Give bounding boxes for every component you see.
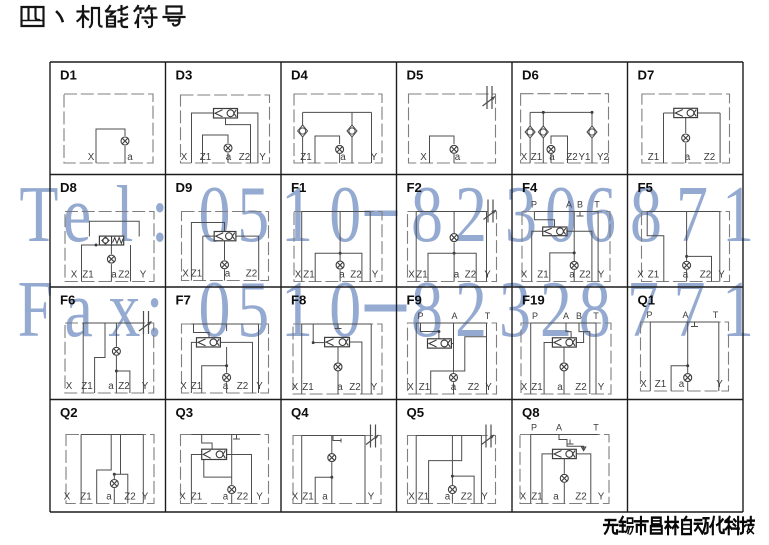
svg-text:a: a: [683, 270, 689, 281]
svg-text:a: a: [223, 381, 229, 392]
svg-text:X: X: [640, 379, 647, 390]
svg-text:a: a: [557, 382, 563, 393]
svg-text:Y: Y: [371, 152, 378, 163]
svg-text:Z1: Z1: [531, 492, 542, 503]
svg-text:Z2: Z2: [349, 382, 360, 393]
svg-text:D1: D1: [60, 68, 77, 83]
svg-text:Y: Y: [481, 492, 488, 503]
svg-text:Z2: Z2: [575, 492, 586, 503]
svg-text:T: T: [593, 311, 599, 321]
svg-text:a: a: [569, 270, 575, 281]
svg-text:a: a: [340, 152, 346, 163]
svg-text:X: X: [292, 382, 299, 393]
svg-text:Z1: Z1: [531, 382, 542, 393]
svg-text:F5: F5: [638, 180, 653, 195]
svg-text:F8: F8: [291, 293, 306, 308]
svg-text:Z2: Z2: [124, 492, 135, 503]
svg-text:Z2: Z2: [350, 270, 361, 281]
svg-text:P: P: [531, 200, 537, 210]
svg-text:Q3: Q3: [176, 405, 194, 420]
svg-text:F4: F4: [522, 180, 538, 195]
svg-text:X: X: [408, 270, 415, 281]
svg-text:Y: Y: [485, 382, 492, 393]
svg-text:X: X: [407, 382, 414, 393]
svg-text:Y: Y: [598, 492, 605, 503]
svg-text:Z1: Z1: [416, 270, 427, 281]
svg-text:D3: D3: [176, 68, 193, 83]
svg-text:Z2: Z2: [237, 381, 248, 392]
svg-text:D4: D4: [291, 68, 309, 83]
svg-text:X: X: [637, 270, 644, 281]
svg-text:F19: F19: [522, 293, 545, 308]
svg-text:X: X: [64, 492, 71, 503]
svg-text:Z2: Z2: [118, 270, 129, 281]
svg-text:X: X: [71, 270, 78, 281]
svg-text:X: X: [182, 269, 189, 280]
svg-text:Z1: Z1: [418, 492, 429, 503]
svg-text:Z1: Z1: [531, 152, 542, 163]
svg-text:X: X: [521, 382, 528, 393]
svg-text:X: X: [88, 152, 95, 163]
svg-text:Z2: Z2: [468, 382, 479, 393]
svg-text:Z1: Z1: [419, 382, 430, 393]
svg-text:D6: D6: [522, 68, 539, 83]
svg-text:Z2: Z2: [566, 152, 577, 163]
svg-text:Y1: Y1: [579, 152, 591, 163]
svg-text:Z1: Z1: [81, 381, 92, 392]
svg-text:X: X: [180, 381, 187, 392]
svg-text:Y: Y: [484, 270, 491, 281]
svg-text:Y: Y: [371, 382, 378, 393]
svg-text:Q8: Q8: [522, 405, 540, 420]
svg-text:Y: Y: [716, 379, 723, 390]
svg-text:Z1: Z1: [537, 270, 548, 281]
svg-text:a: a: [225, 269, 231, 280]
svg-text:T: T: [485, 311, 491, 321]
svg-text:A: A: [556, 423, 562, 433]
svg-text:B: B: [577, 200, 583, 210]
svg-text:A: A: [563, 311, 569, 321]
svg-text:a: a: [337, 382, 343, 393]
svg-text:X: X: [521, 152, 528, 163]
svg-text:Z1: Z1: [302, 492, 313, 503]
svg-text:Z2: Z2: [237, 492, 248, 503]
svg-text:Z1: Z1: [303, 270, 314, 281]
svg-text:F9: F9: [407, 293, 422, 308]
svg-text:A: A: [451, 311, 457, 321]
svg-text:Z1: Z1: [655, 379, 666, 390]
svg-text:B: B: [576, 311, 582, 321]
svg-text:Z1: Z1: [200, 152, 211, 163]
svg-text:Y: Y: [368, 492, 375, 503]
svg-text:Z1: Z1: [191, 492, 202, 503]
svg-text:a: a: [223, 492, 229, 503]
svg-text:a: a: [445, 492, 451, 503]
svg-text:Z1: Z1: [302, 382, 313, 393]
svg-text:Y: Y: [142, 492, 149, 503]
svg-text:Z2: Z2: [118, 381, 129, 392]
svg-text:Z1: Z1: [82, 270, 93, 281]
svg-text:a: a: [106, 492, 112, 503]
svg-text:a: a: [455, 152, 461, 163]
svg-text:Q1: Q1: [638, 293, 656, 308]
svg-text:P: P: [531, 423, 537, 433]
svg-text:Z2: Z2: [700, 270, 711, 281]
svg-text:a: a: [685, 152, 691, 163]
svg-text:Y2: Y2: [597, 152, 609, 163]
svg-text:Z2: Z2: [575, 382, 586, 393]
svg-text:a: a: [549, 152, 555, 163]
svg-text:Y: Y: [142, 381, 149, 392]
svg-text:Y: Y: [718, 270, 725, 281]
svg-text:a: a: [339, 270, 345, 281]
svg-text:Z1: Z1: [191, 269, 202, 280]
svg-text:Y: Y: [598, 382, 605, 393]
svg-text:Z2: Z2: [239, 152, 250, 163]
svg-text:X: X: [520, 492, 527, 503]
svg-text:D7: D7: [638, 68, 655, 83]
svg-text:Z2: Z2: [579, 270, 590, 281]
svg-text:a: a: [679, 379, 685, 390]
svg-text:X: X: [420, 152, 427, 163]
svg-text:P: P: [532, 311, 538, 321]
svg-text:P: P: [646, 310, 652, 320]
svg-text:F1: F1: [291, 180, 306, 195]
svg-text:Y: Y: [372, 270, 379, 281]
svg-text:F6: F6: [60, 293, 75, 308]
svg-text:X: X: [179, 492, 186, 503]
svg-text:D8: D8: [60, 180, 77, 195]
svg-text:a: a: [108, 381, 114, 392]
svg-text:Z1: Z1: [648, 152, 659, 163]
svg-text:Z2: Z2: [465, 270, 476, 281]
svg-text:A: A: [566, 200, 572, 210]
svg-text:X: X: [66, 381, 73, 392]
svg-text:Y: Y: [140, 270, 147, 281]
svg-text:Z1: Z1: [191, 381, 202, 392]
svg-text:D9: D9: [176, 180, 193, 195]
svg-text:Y: Y: [256, 492, 263, 503]
svg-text:a: a: [322, 492, 328, 503]
svg-text:Q4: Q4: [291, 405, 309, 420]
svg-text:P: P: [417, 311, 423, 321]
svg-text:Z2: Z2: [461, 492, 472, 503]
svg-text:X: X: [408, 492, 415, 503]
svg-text:F2: F2: [407, 180, 422, 195]
svg-text:X: X: [181, 152, 188, 163]
svg-text:T: T: [713, 310, 719, 320]
svg-text:Y: Y: [256, 381, 263, 392]
svg-text:a: a: [451, 382, 457, 393]
svg-text:a: a: [454, 270, 460, 281]
svg-text:X: X: [521, 270, 528, 281]
svg-text:Y: Y: [259, 152, 266, 163]
svg-text:Q5: Q5: [407, 405, 425, 420]
svg-text:D5: D5: [407, 68, 424, 83]
svg-text:F7: F7: [176, 293, 191, 308]
svg-text:Q2: Q2: [60, 405, 78, 420]
svg-text:a: a: [553, 492, 559, 503]
svg-text:Z2: Z2: [704, 152, 715, 163]
svg-text:a: a: [226, 152, 232, 163]
svg-text:Y: Y: [598, 270, 605, 281]
svg-text:X: X: [295, 270, 302, 281]
svg-text:Z2: Z2: [246, 269, 257, 280]
svg-text:Z1: Z1: [80, 492, 91, 503]
svg-text:X: X: [292, 492, 299, 503]
svg-text:a: a: [127, 152, 133, 163]
svg-text:Z1: Z1: [300, 152, 311, 163]
svg-text:Z1: Z1: [648, 270, 659, 281]
svg-text:T: T: [593, 423, 599, 433]
svg-text:T: T: [594, 200, 600, 210]
svg-text:a: a: [111, 270, 117, 281]
svg-text:A: A: [682, 310, 688, 320]
